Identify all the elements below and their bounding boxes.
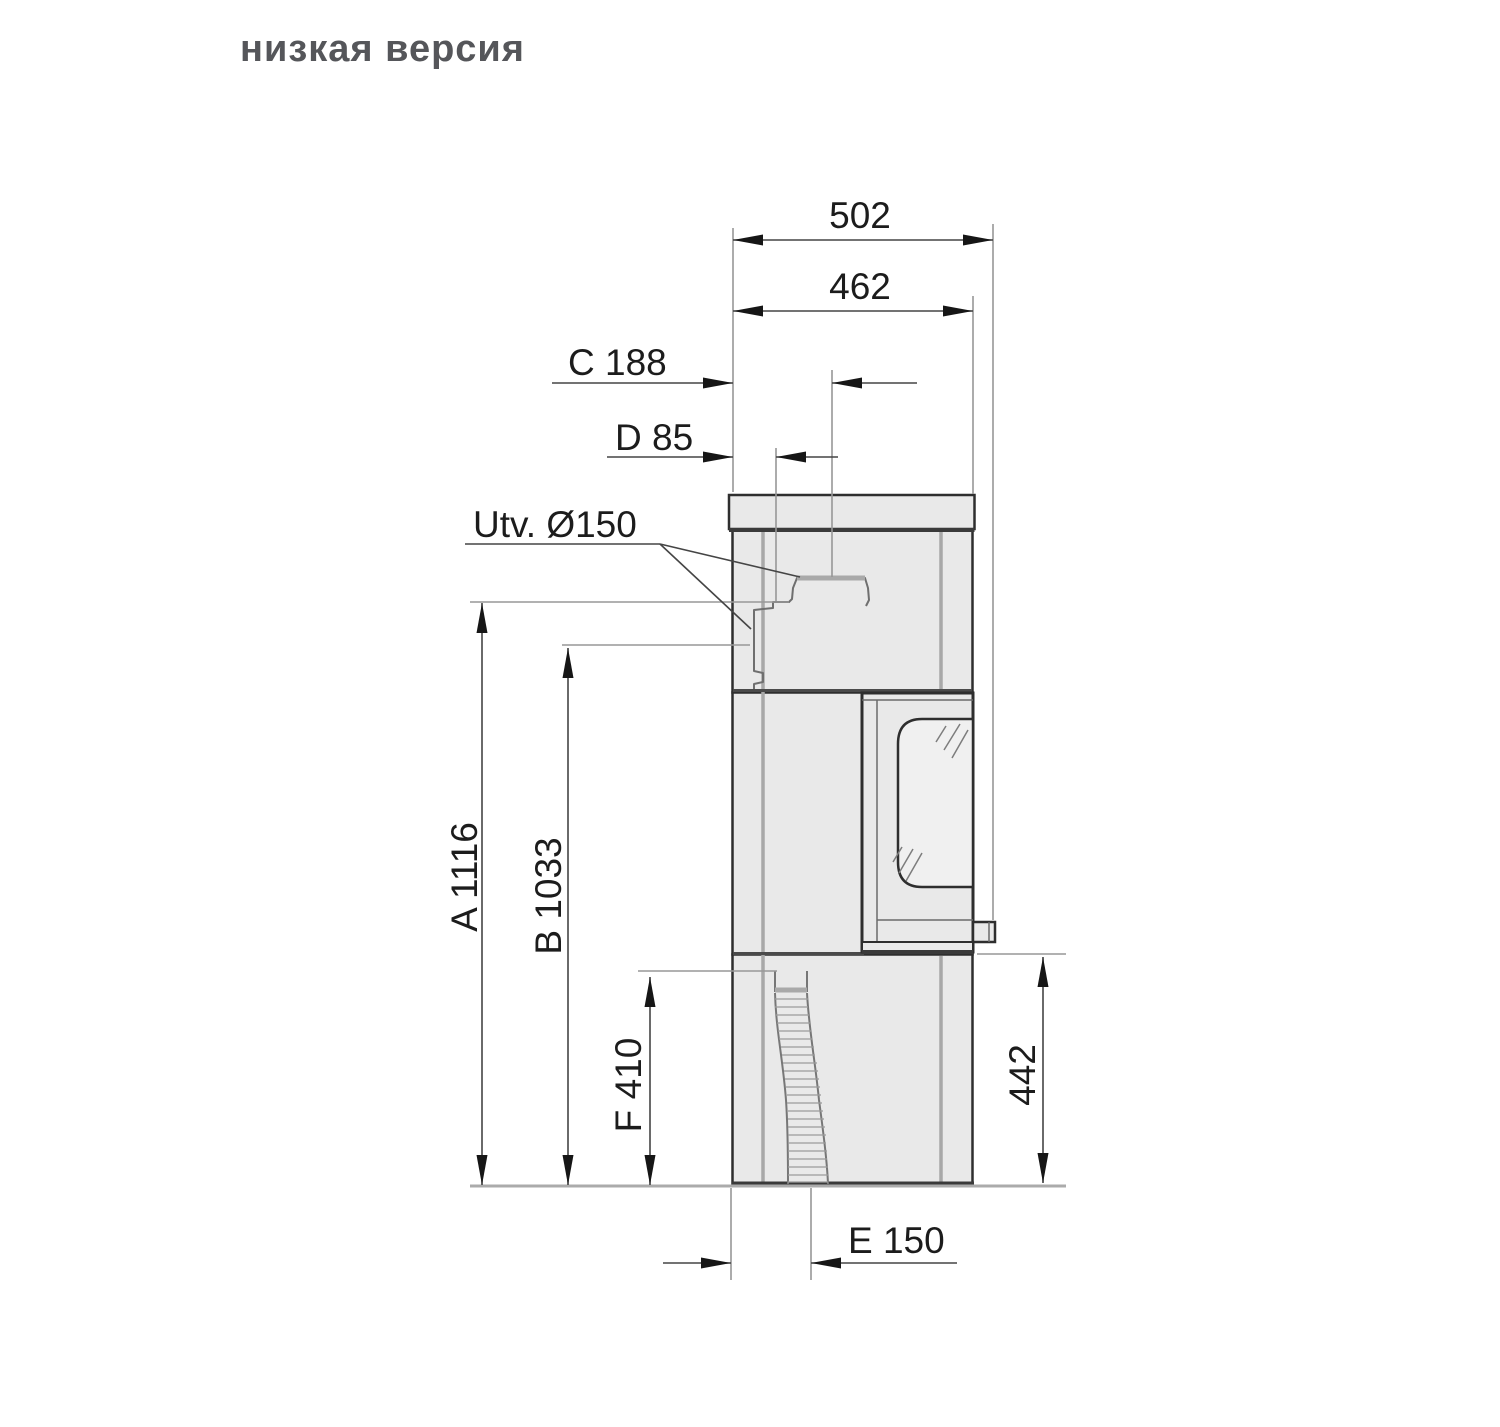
top-cap xyxy=(729,495,975,529)
page: { "page": { "title": "низкая версия" }, … xyxy=(0,0,1500,1427)
dim-rear-flue-offset: D 85 xyxy=(607,417,838,463)
dim-door-bottom-height: 442 xyxy=(1002,957,1049,1183)
door xyxy=(862,693,995,952)
door-glass xyxy=(898,719,973,887)
dim-label-body-depth: 462 xyxy=(829,266,891,307)
top-section xyxy=(733,529,973,693)
dim-label-flue-diameter: Utv. Ø150 xyxy=(473,504,637,545)
dim-label-overall-depth: 502 xyxy=(829,195,891,236)
dim-label-door-bottom-height: 442 xyxy=(1002,1044,1043,1106)
dim-floor-outlet-offset: E 150 xyxy=(663,1220,957,1269)
dim-rear-flue-height: B 1033 xyxy=(528,648,574,1185)
dim-label-rear-flue-offset: D 85 xyxy=(615,417,693,458)
dim-side-connection-height: F 410 xyxy=(608,977,656,1185)
dim-label-rear-flue-height: B 1033 xyxy=(528,837,569,954)
dim-top-flue-offset: C 188 xyxy=(552,342,917,389)
bottom-section xyxy=(733,955,973,1185)
door-handle xyxy=(973,922,995,942)
dim-label-side-connection-height: F 410 xyxy=(608,1038,649,1133)
dim-label-top-flue-offset: C 188 xyxy=(568,342,667,383)
dim-top-flue-height: A 1116 xyxy=(444,603,488,1185)
dim-label-top-flue-height: A 1116 xyxy=(444,822,485,932)
dim-body-depth: 462 xyxy=(733,266,973,317)
dim-label-floor-outlet-offset: E 150 xyxy=(848,1220,945,1261)
stove-dimension-drawing: 502 462 C 188 D 85 Utv. Ø150 A 1116 xyxy=(0,0,1500,1427)
dim-overall-depth: 502 xyxy=(733,195,993,246)
